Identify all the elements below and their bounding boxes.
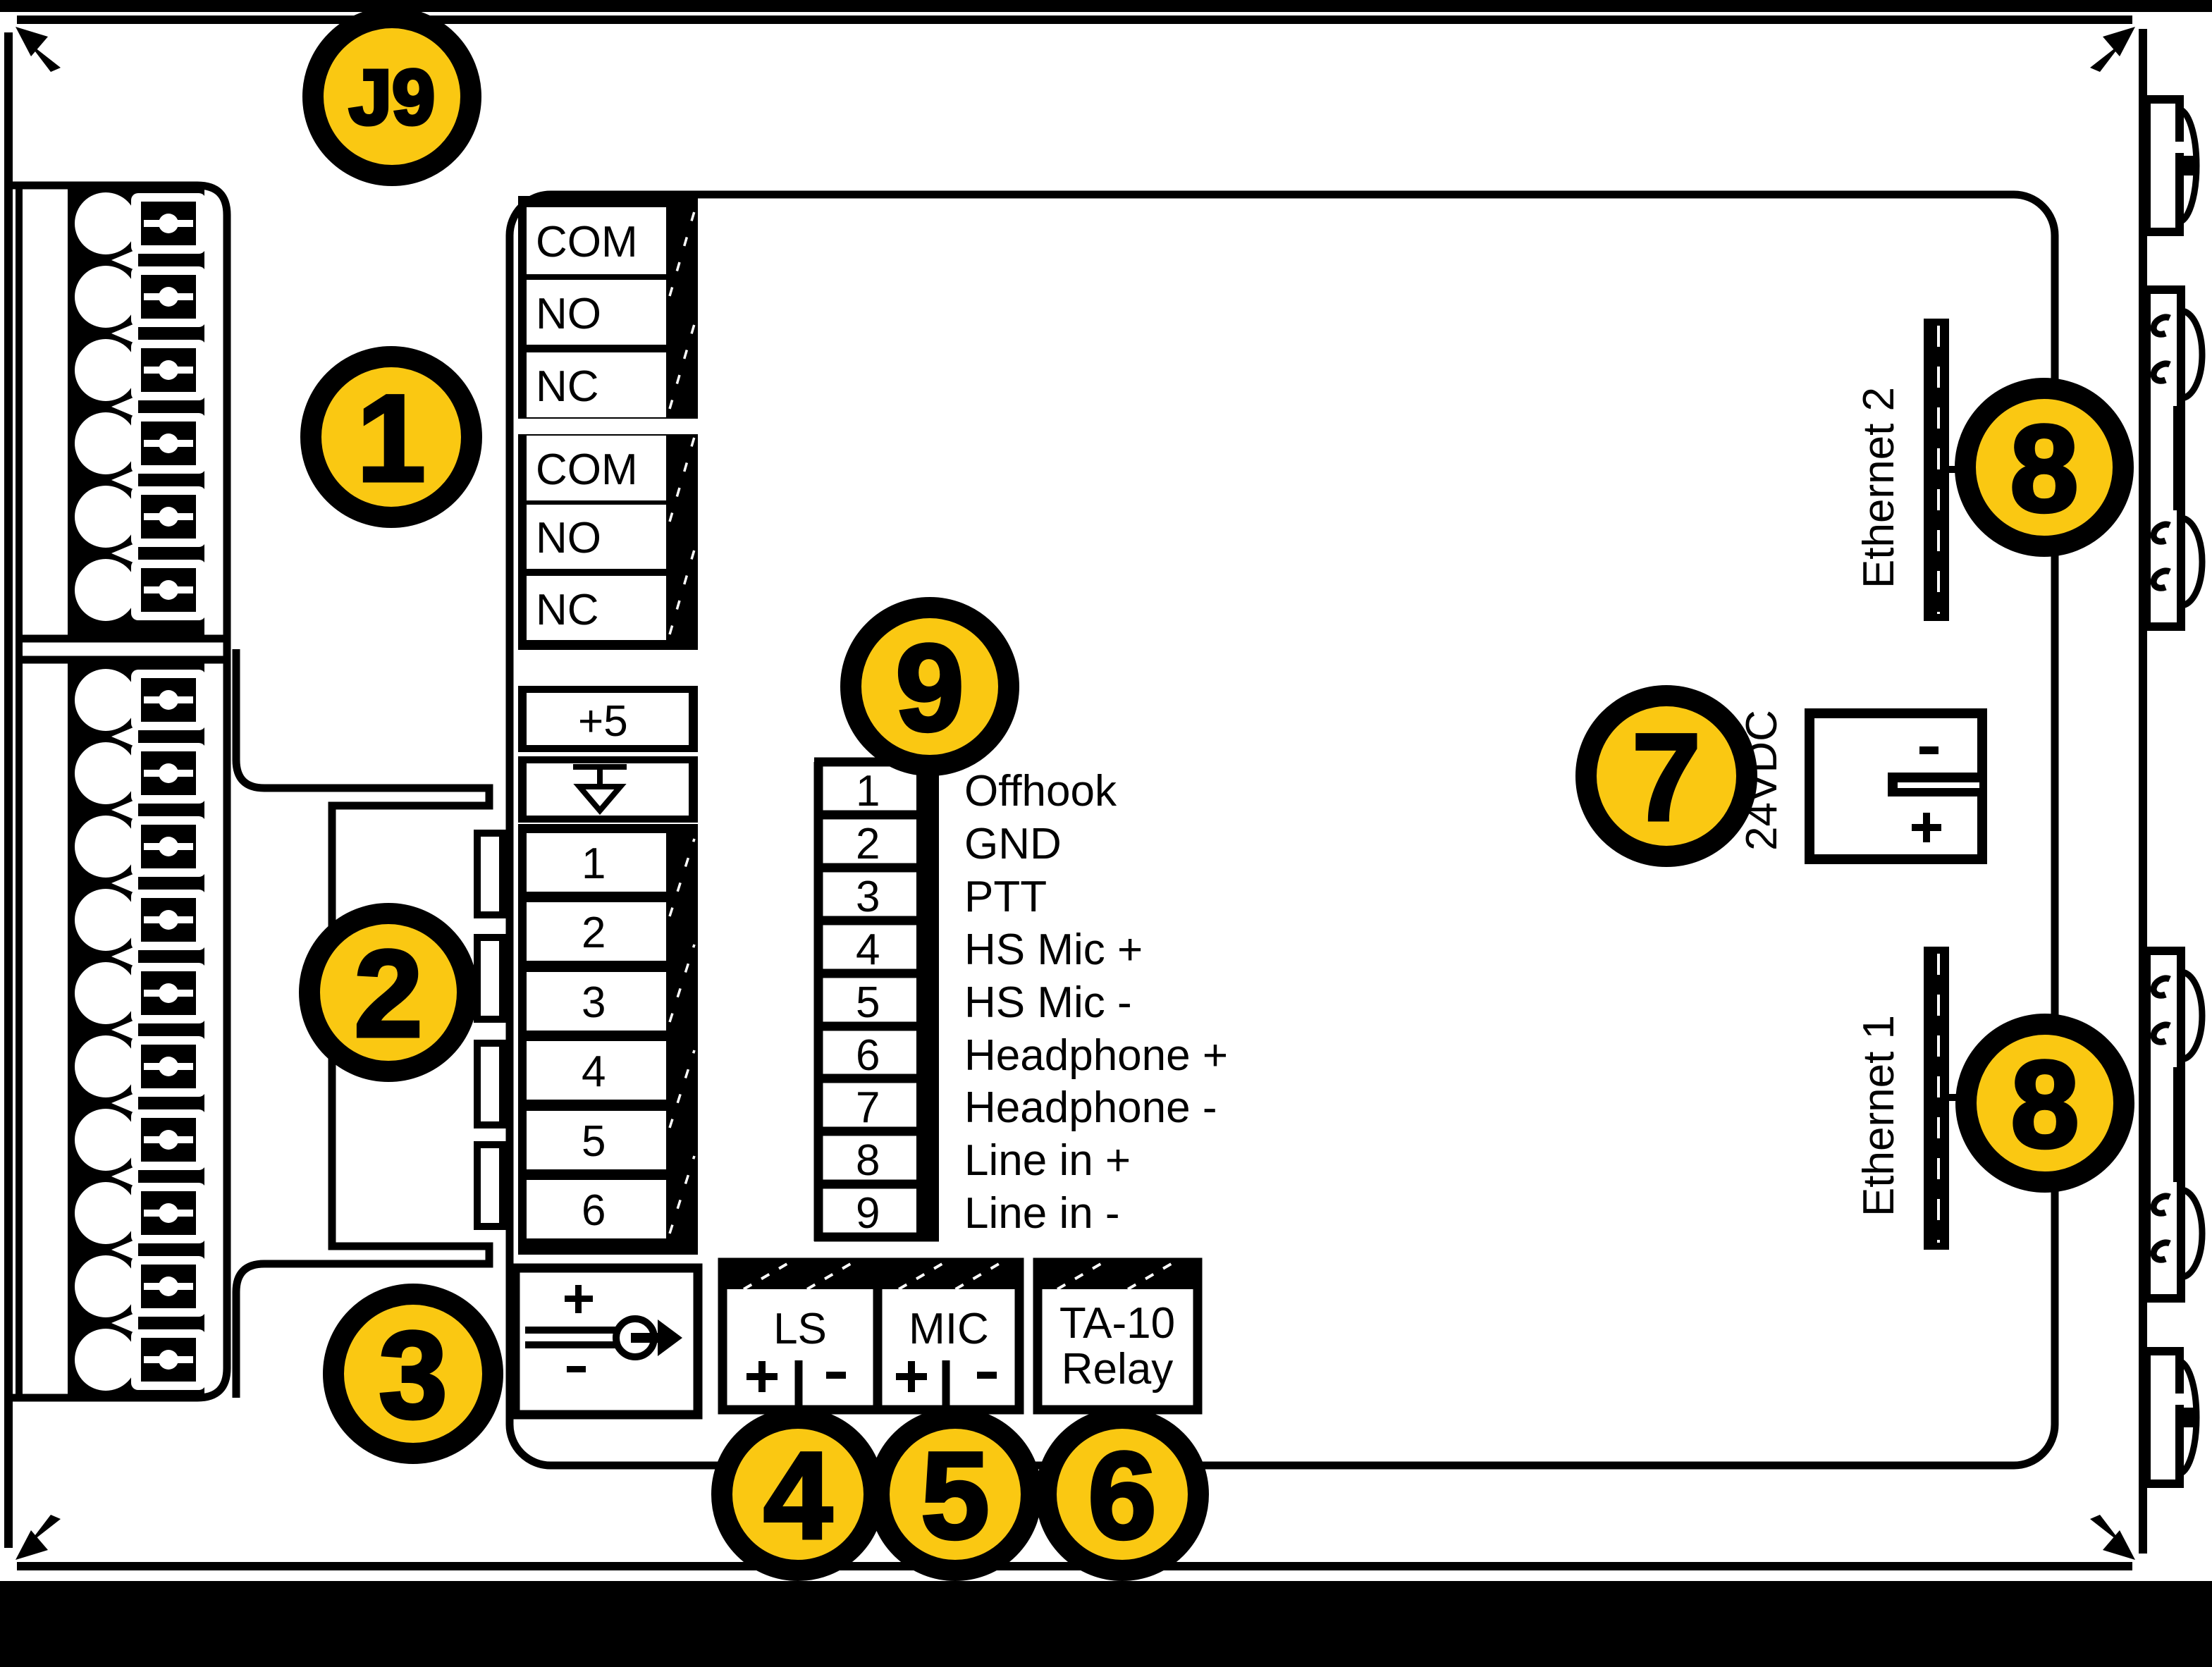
svg-text:1: 1 <box>582 839 606 888</box>
svg-text:6: 6 <box>856 1031 880 1080</box>
svg-text:7: 7 <box>856 1083 880 1132</box>
svg-text:NO: NO <box>536 290 601 338</box>
svg-text:NC: NC <box>536 586 599 634</box>
svg-text:Line in -: Line in - <box>964 1189 1120 1238</box>
svg-text:MIC: MIC <box>909 1305 989 1353</box>
svg-text:HS Mic -: HS Mic - <box>964 978 1132 1027</box>
svg-text:LS: LS <box>773 1305 827 1353</box>
svg-text:4: 4 <box>582 1047 606 1096</box>
svg-text:8: 8 <box>2010 1036 2079 1174</box>
svg-text:TA-10: TA-10 <box>1059 1299 1175 1348</box>
svg-text:9: 9 <box>856 1189 880 1238</box>
svg-text:PTT: PTT <box>964 873 1047 921</box>
svg-text:3: 3 <box>856 873 880 921</box>
svg-text:8: 8 <box>2010 400 2078 538</box>
svg-text:Ethernet 2: Ethernet 2 <box>1855 387 1903 589</box>
svg-text:Headphone +: Headphone + <box>964 1031 1228 1080</box>
svg-text:3: 3 <box>379 1307 447 1444</box>
svg-text:8: 8 <box>856 1136 880 1185</box>
svg-text:4: 4 <box>856 925 880 974</box>
svg-text:1: 1 <box>357 370 425 508</box>
svg-text:3: 3 <box>582 978 606 1027</box>
svg-text:2: 2 <box>856 820 880 868</box>
svg-text:5: 5 <box>921 1427 989 1565</box>
svg-text:9: 9 <box>895 620 964 757</box>
svg-text:HS Mic +: HS Mic + <box>964 925 1143 974</box>
svg-text:2: 2 <box>582 909 606 957</box>
svg-text:6: 6 <box>582 1186 606 1235</box>
svg-text:GND: GND <box>964 820 1062 868</box>
svg-text:6: 6 <box>1088 1427 1156 1565</box>
svg-text:COM: COM <box>536 218 638 266</box>
svg-text:Ethernet 1: Ethernet 1 <box>1855 1015 1903 1217</box>
svg-text:COM: COM <box>536 445 638 494</box>
svg-text:NO: NO <box>536 514 601 562</box>
svg-text:7: 7 <box>1632 709 1700 847</box>
svg-text:4: 4 <box>763 1427 832 1565</box>
svg-text:NC: NC <box>536 362 599 411</box>
svg-text:5: 5 <box>582 1117 606 1166</box>
svg-text:Offhook: Offhook <box>964 767 1117 816</box>
svg-text:Relay: Relay <box>1062 1345 1174 1394</box>
svg-text:1: 1 <box>856 767 880 816</box>
svg-text:5: 5 <box>856 978 880 1027</box>
svg-text:2: 2 <box>354 925 422 1063</box>
svg-text:Line in +: Line in + <box>964 1136 1131 1185</box>
svg-text:Headphone -: Headphone - <box>964 1083 1217 1132</box>
svg-text:+5: +5 <box>578 697 628 746</box>
svg-text:J9: J9 <box>349 54 435 141</box>
